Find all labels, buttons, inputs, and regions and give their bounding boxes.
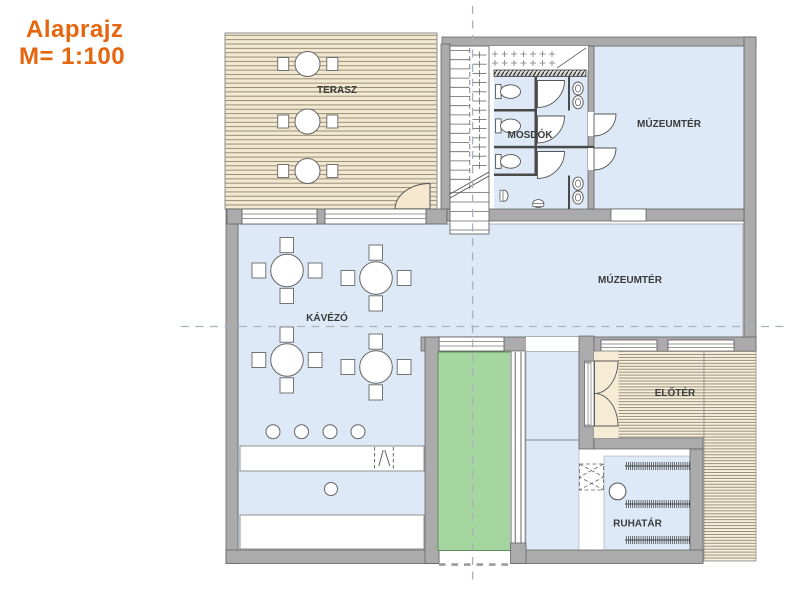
svg-text:KÁVÉZÓ: KÁVÉZÓ (306, 311, 348, 324)
svg-text:MÚZEUMTÉR: MÚZEUMTÉR (637, 117, 702, 130)
svg-text:ELŐTÉR: ELŐTÉR (655, 386, 696, 399)
svg-text:TERASZ: TERASZ (317, 85, 357, 96)
svg-text:RUHATÁR: RUHATÁR (613, 517, 662, 530)
svg-text:MOSDÓK: MOSDÓK (508, 128, 554, 141)
svg-text:M= 1:100: M= 1:100 (19, 43, 125, 70)
svg-text:Alaprajz: Alaprajz (26, 16, 123, 43)
svg-text:MÚZEUMTÉR: MÚZEUMTÉR (598, 273, 663, 286)
